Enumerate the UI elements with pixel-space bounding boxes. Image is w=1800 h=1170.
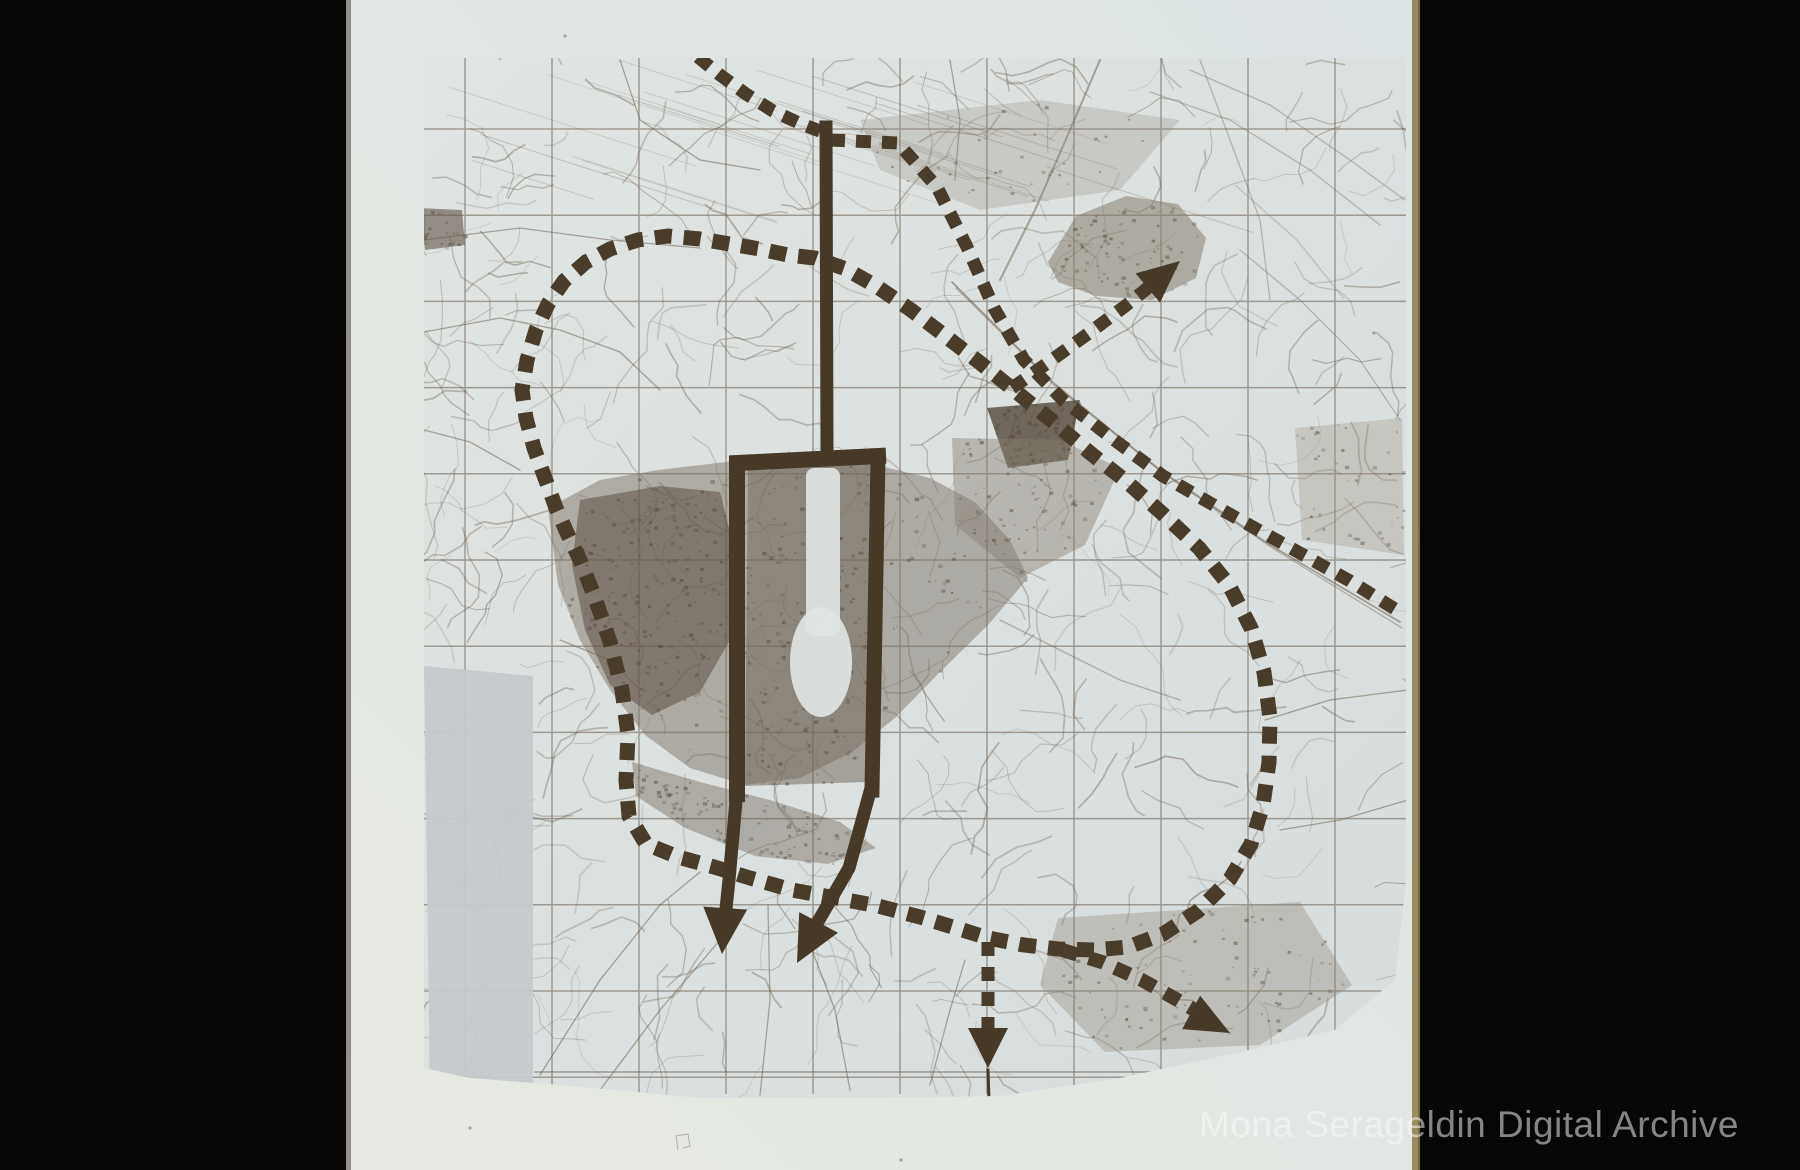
watermark-text: Mona Serageldin Digital Archive <box>1199 1104 1739 1146</box>
dust-speck <box>563 34 566 37</box>
citadel-box-right <box>872 456 878 790</box>
slide-left-edge <box>346 0 351 1170</box>
dust-speck <box>468 1126 471 1129</box>
north-south-axis <box>826 127 827 452</box>
south-branch-tail <box>988 1070 989 1100</box>
gray-rectangle-overlay <box>424 666 533 1093</box>
map-image <box>358 0 1475 1119</box>
dust-speck <box>1372 331 1375 334</box>
dust-speck <box>899 1158 902 1161</box>
slide-photograph <box>0 0 1800 1170</box>
slide-scan-screenshot: Mona Serageldin Digital Archive <box>0 0 1800 1170</box>
slide-right-edge <box>1412 0 1420 1170</box>
